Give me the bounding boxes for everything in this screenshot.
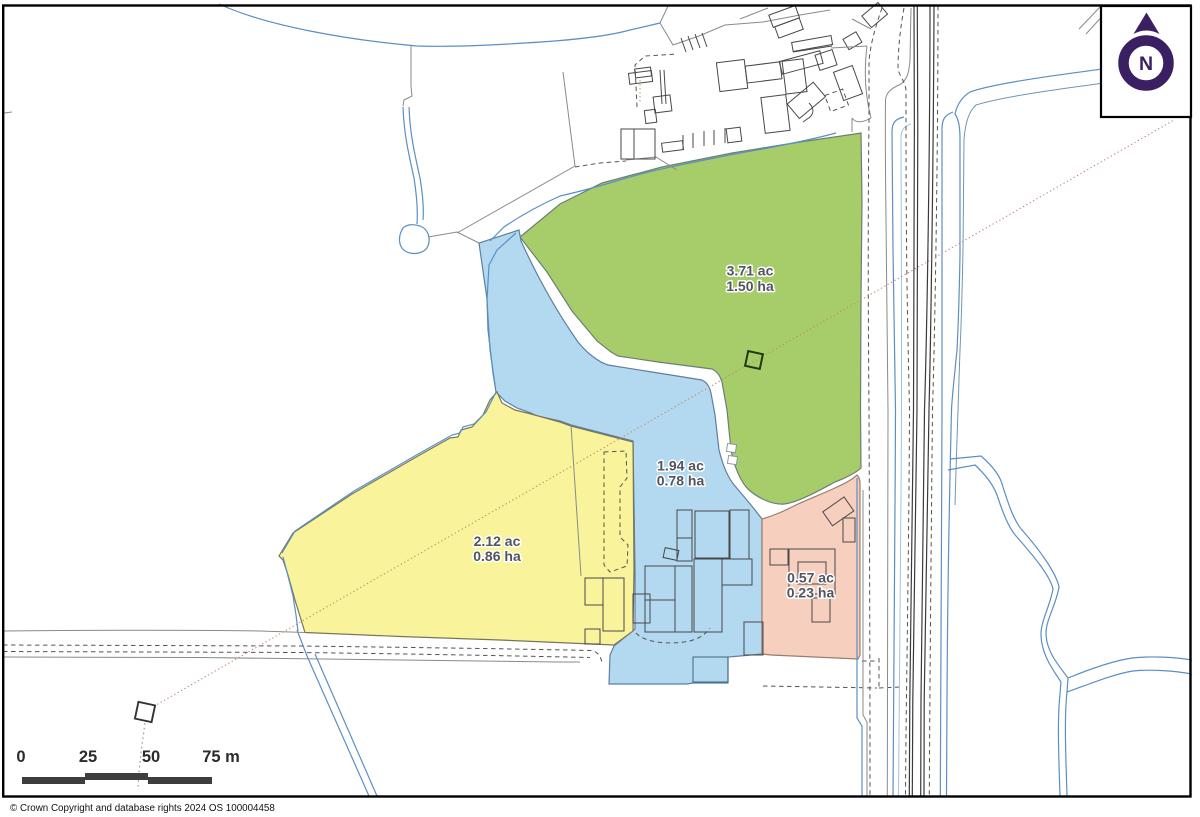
svg-text:50: 50 bbox=[142, 748, 160, 766]
svg-text:0.78 ha: 0.78 ha bbox=[657, 473, 705, 489]
svg-text:N: N bbox=[1139, 53, 1153, 75]
svg-text:1.94 ac: 1.94 ac bbox=[657, 458, 704, 474]
svg-text:0.86 ha: 0.86 ha bbox=[473, 548, 521, 564]
svg-text:1.50 ha: 1.50 ha bbox=[726, 278, 774, 294]
svg-text:2.12 ac: 2.12 ac bbox=[474, 533, 521, 549]
svg-text:3.71 ac: 3.71 ac bbox=[727, 263, 774, 279]
svg-text:0.23 ha: 0.23 ha bbox=[787, 585, 835, 601]
svg-text:75 m: 75 m bbox=[202, 748, 240, 766]
svg-text:0: 0 bbox=[16, 748, 25, 766]
svg-text:0.57 ac: 0.57 ac bbox=[787, 570, 834, 586]
svg-text:25: 25 bbox=[79, 748, 97, 766]
svg-text:© Crown Copyright and database: © Crown Copyright and database rights 20… bbox=[10, 803, 275, 814]
